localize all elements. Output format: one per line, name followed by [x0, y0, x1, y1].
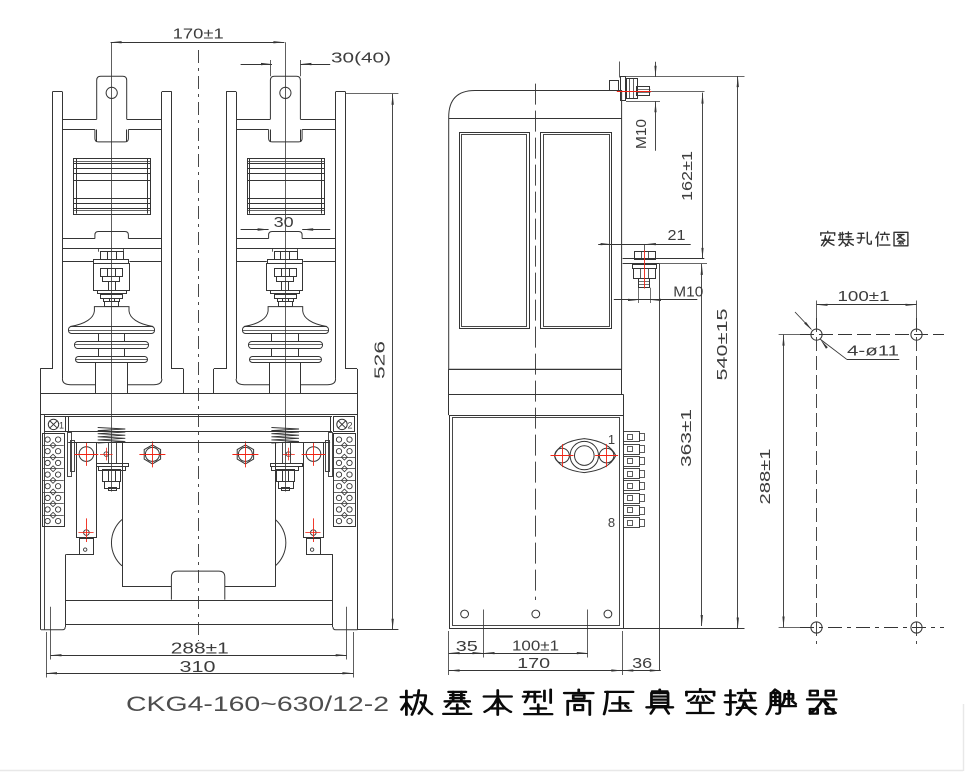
svg-text:162±1: 162±1	[679, 151, 696, 201]
svg-text:1: 1	[608, 432, 615, 447]
svg-text:363±1: 363±1	[678, 409, 695, 467]
svg-text:8: 8	[608, 515, 615, 530]
svg-text:288±1: 288±1	[757, 449, 774, 505]
svg-text:M10: M10	[633, 119, 650, 149]
svg-text:170±1: 170±1	[173, 26, 224, 43]
svg-text:526: 526	[372, 341, 389, 379]
svg-text:170: 170	[517, 655, 550, 672]
svg-text:CKG4-160~630/12-2: CKG4-160~630/12-2	[126, 693, 389, 716]
svg-text:2: 2	[347, 421, 352, 431]
svg-text:30(40): 30(40)	[331, 50, 391, 67]
svg-text:1: 1	[59, 421, 64, 431]
svg-text:36: 36	[632, 655, 652, 672]
svg-text:100±1: 100±1	[512, 638, 559, 655]
svg-text:M10: M10	[673, 284, 703, 301]
svg-text:100±1: 100±1	[838, 288, 890, 305]
svg-text:288±1: 288±1	[171, 641, 229, 658]
svg-text:21: 21	[668, 227, 686, 244]
svg-text:30: 30	[274, 214, 294, 231]
svg-text:4-ø11: 4-ø11	[847, 343, 899, 360]
svg-text:540±15: 540±15	[714, 309, 731, 381]
